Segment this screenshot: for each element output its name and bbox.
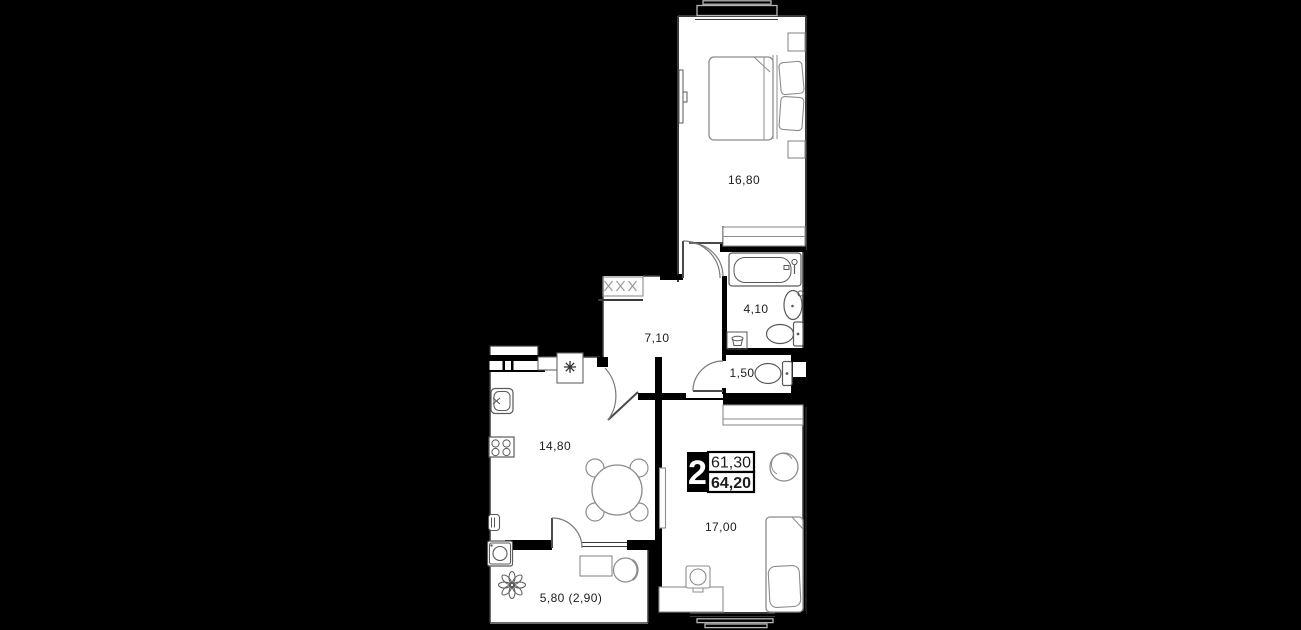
wc-area-label: 1,50 [730,366,755,380]
toilet-button [797,333,800,336]
wall-kitchen-door-jamb [597,357,608,367]
kitchen-area-label: 14,80 [539,439,571,453]
shelf-icon [660,468,666,528]
asterisk-icon [564,361,576,373]
tv-stand [659,587,723,612]
radiator-icon [489,515,500,531]
wall-nook-step [660,274,683,280]
tv-screen [679,70,683,123]
bedroom-area-label: 16,80 [728,173,760,187]
bed-mattress [709,57,773,140]
dining-table-icon [586,459,648,521]
nightstand-icon [788,141,805,158]
wc-fixtures [755,362,792,386]
wardrobe-body [723,405,803,425]
wall-bathroom-left [722,276,727,350]
toilet-bowl [755,364,781,384]
nightstand-icon [788,33,805,51]
living-area-label: 17,00 [705,520,737,534]
floor-plan-page: 2 61,30 64,20 16,80 4,10 1,50 7,10 14,80… [0,0,1301,630]
counter-box [538,357,558,370]
bedroom-entry-nook-floor [678,226,723,282]
sink-drain [791,305,794,308]
pillow [779,96,804,131]
appliance-counter-icon [557,353,583,383]
badge-rooms-count: 2 [688,454,707,492]
badge-living-area: 61,30 [711,455,751,472]
wardrobe-icon [723,227,805,246]
tv-mount [683,92,687,102]
balcony-area-label: 5,80 (2,90) [540,591,602,605]
kitchen-floor [490,357,655,545]
vent-shaft-2 [505,361,511,370]
badge-total-area: 64,20 [711,475,751,492]
toilet-icon [755,362,792,386]
double-bed-icon [709,55,804,140]
table-top [592,465,642,515]
toilet-button [786,372,789,375]
wall-wc-left-top [722,355,726,361]
pillow [768,565,801,608]
stove-icon [489,437,514,457]
wall-balcony-right-pier [627,540,655,550]
balcony-table-icon [580,556,612,576]
wardrobe-icon [723,405,803,425]
bathtub-icon [729,253,801,286]
bathroom-area-label: 4,10 [744,302,769,316]
floor-plan-canvas: 2 61,30 64,20 16,80 4,10 1,50 7,10 14,80… [0,0,1301,630]
duct-shaft-opening [793,362,806,377]
kitchen-sink-icon [491,389,513,414]
apartment-badge: 2 61,30 64,20 [687,452,754,492]
washing-machine-icon [488,541,513,566]
hallway-area-label: 7,10 [645,331,670,345]
vent-shaft-1 [490,361,503,370]
vent-shaft-3 [514,361,538,370]
toilet-bowl [767,325,794,344]
pillow [779,61,805,95]
single-bed-icon [766,517,803,612]
tv-base [693,588,703,592]
washer-knob [490,544,492,546]
